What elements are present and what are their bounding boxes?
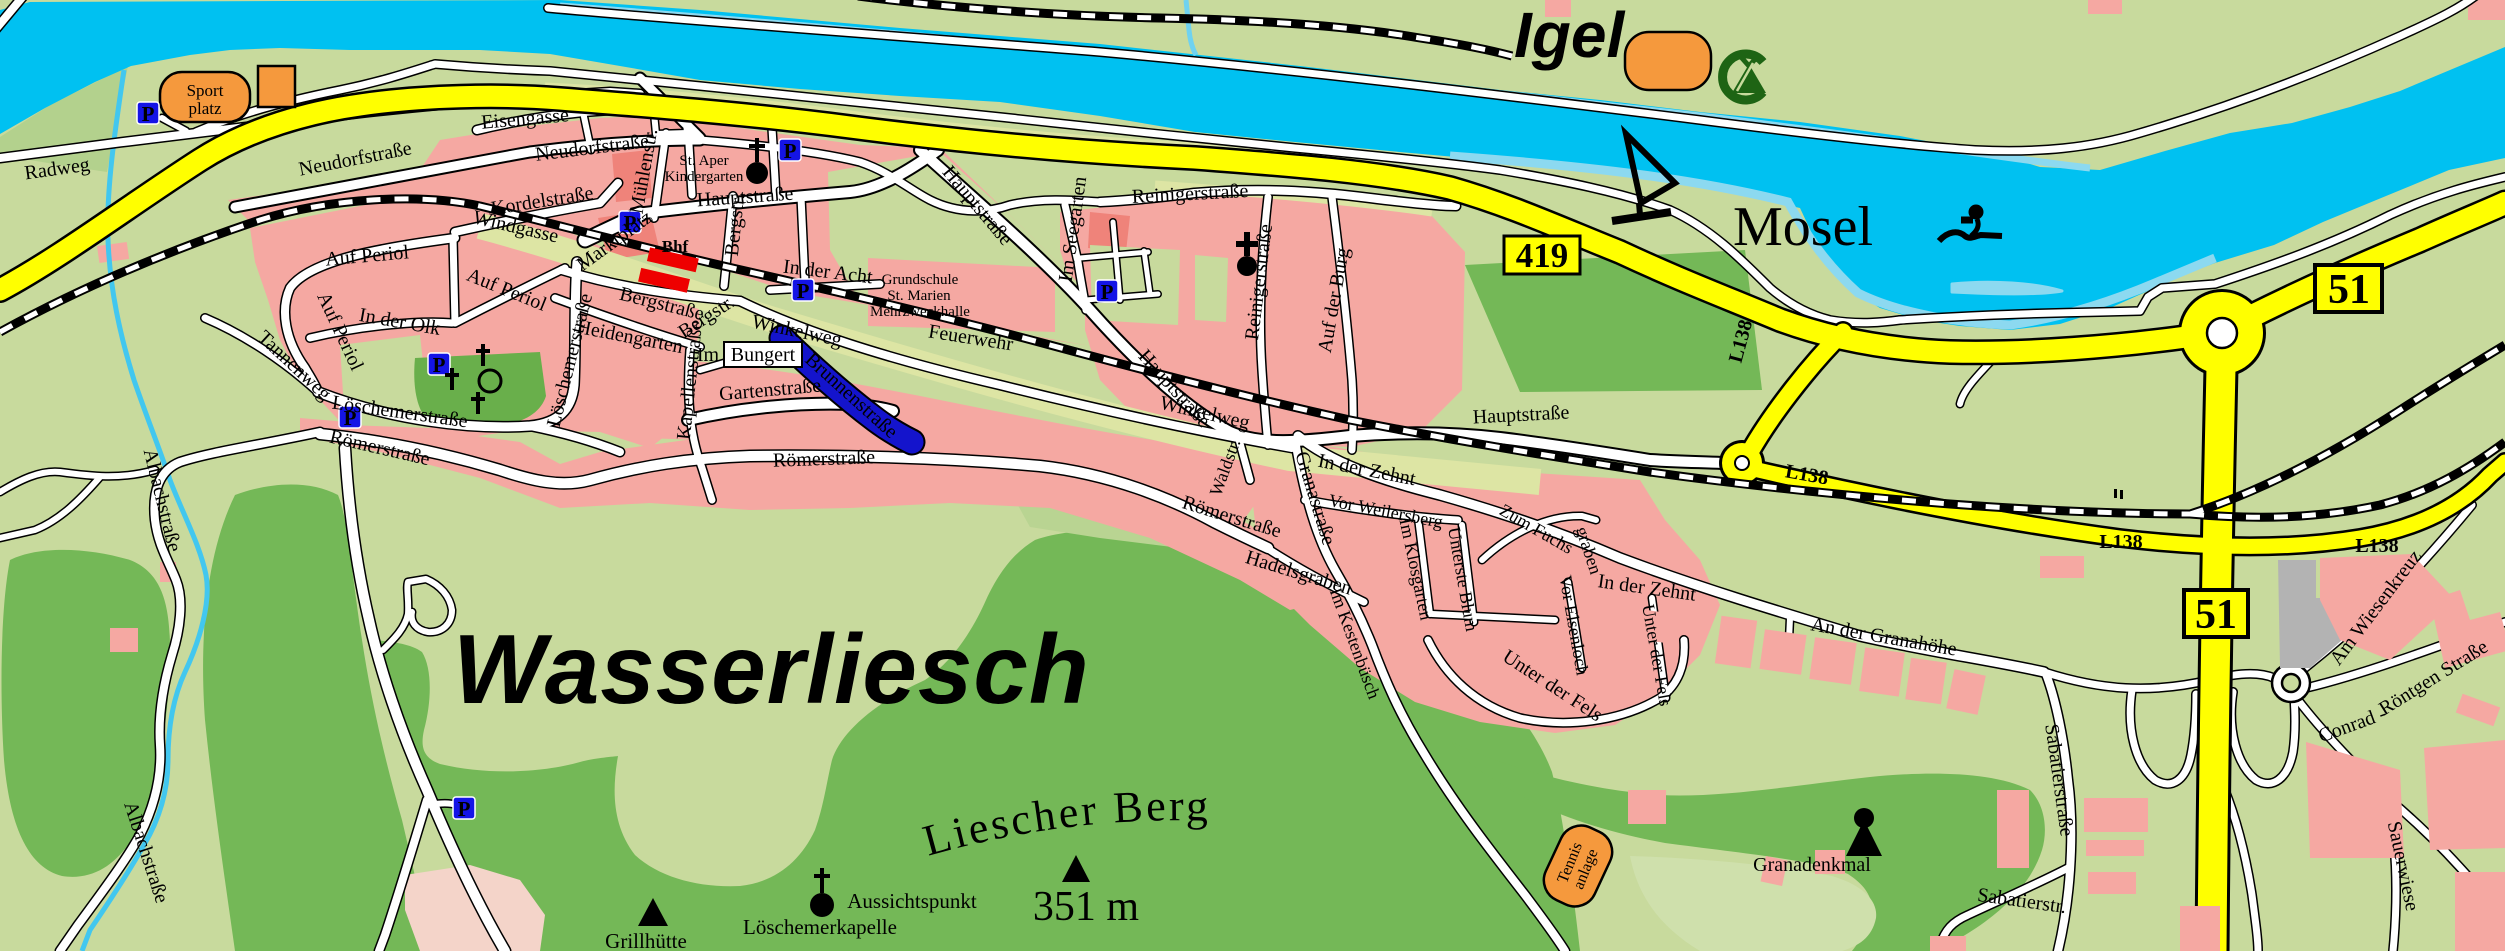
svg-text:Grundschule: Grundschule bbox=[882, 272, 959, 288]
svg-text:L138: L138 bbox=[2355, 535, 2398, 557]
svg-text:St. Aper: St. Aper bbox=[679, 153, 728, 169]
svg-text:Wasserliesch: Wasserliesch bbox=[453, 614, 1090, 724]
svg-text:St. Marien: St. Marien bbox=[887, 288, 951, 304]
svg-text:Bhf: Bhf bbox=[662, 237, 689, 256]
svg-text:351 m: 351 m bbox=[1033, 884, 1140, 930]
svg-text:Grillhütte: Grillhütte bbox=[605, 929, 687, 951]
svg-text:Kindergarten: Kindergarten bbox=[665, 169, 744, 185]
svg-text:Aussichtspunkt: Aussichtspunkt bbox=[847, 889, 977, 913]
svg-text:419: 419 bbox=[1516, 236, 1569, 275]
svg-text:Römerstraße: Römerstraße bbox=[773, 446, 876, 472]
svg-text:Mehrzweckhalle: Mehrzweckhalle bbox=[870, 304, 970, 320]
svg-text:Löschemerkapelle: Löschemerkapelle bbox=[743, 915, 897, 939]
svg-text:Sport: Sport bbox=[187, 81, 224, 100]
svg-text:L138: L138 bbox=[2099, 531, 2142, 553]
svg-text:Granadenkmal: Granadenkmal bbox=[1753, 854, 1871, 876]
svg-text:51: 51 bbox=[2195, 592, 2237, 638]
svg-text:Igel: Igel bbox=[1514, 0, 1625, 71]
svg-text:Mosel: Mosel bbox=[1733, 196, 1873, 258]
svg-text:Bungert: Bungert bbox=[731, 344, 796, 366]
svg-text:51: 51 bbox=[2328, 267, 2370, 313]
svg-text:platz: platz bbox=[188, 99, 221, 118]
